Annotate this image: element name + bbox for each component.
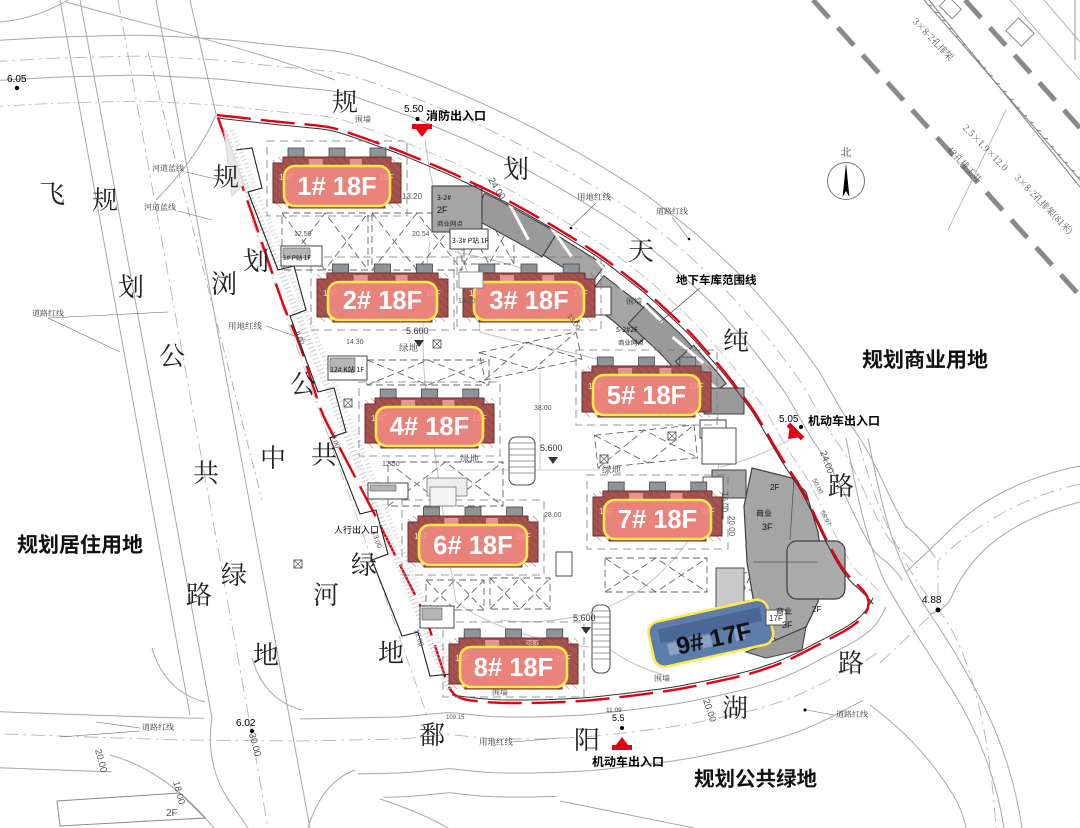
svg-text:17F: 17F (769, 614, 783, 623)
svg-text:5.600: 5.600 (540, 443, 563, 453)
svg-text:20.00: 20.00 (727, 516, 736, 537)
svg-text:5.05: 5.05 (779, 414, 799, 425)
svg-text:13.20: 13.20 (402, 192, 423, 201)
svg-text:4.88: 4.88 (922, 595, 942, 606)
svg-text:12.00: 12.00 (412, 628, 424, 647)
svg-text:30.00: 30.00 (246, 732, 263, 758)
svg-text:20.00: 20.00 (92, 748, 109, 774)
svg-text:3F: 3F (762, 522, 773, 532)
svg-text:2# 18F: 2# 18F (343, 287, 422, 315)
svg-text:5.600: 5.600 (573, 613, 596, 623)
svg-text:1# 18F: 1# 18F (297, 173, 376, 201)
svg-text:3# 18F: 3# 18F (489, 287, 568, 315)
svg-text:13.00: 13.00 (370, 530, 382, 549)
svg-text:14.00: 14.00 (458, 298, 476, 305)
svg-text:109.15: 109.15 (446, 715, 465, 721)
svg-text:6# 18F: 6# 18F (433, 532, 512, 560)
svg-text:11.09: 11.09 (606, 707, 622, 714)
svg-text:12.00: 12.00 (328, 430, 340, 449)
svg-text:28.00: 28.00 (526, 641, 544, 648)
svg-text:2F: 2F (166, 808, 178, 819)
svg-text:5# 18F: 5# 18F (607, 382, 686, 410)
svg-text:50.00: 50.00 (810, 478, 824, 496)
svg-text:14.30: 14.30 (346, 339, 364, 346)
svg-text:4# 18F: 4# 18F (390, 413, 469, 441)
svg-text:8# 18F: 8# 18F (474, 654, 553, 682)
svg-text:2F: 2F (437, 205, 448, 215)
svg-text:16.00: 16.00 (720, 492, 729, 513)
svg-text:28.00: 28.00 (544, 512, 562, 519)
svg-text:20.54: 20.54 (412, 231, 430, 238)
svg-text:5.5: 5.5 (612, 713, 625, 723)
svg-text:2F: 2F (812, 605, 821, 614)
svg-text:5.50: 5.50 (404, 104, 424, 115)
svg-text:3F: 3F (782, 620, 793, 630)
svg-text:12.50: 12.50 (382, 461, 400, 468)
svg-text:6.02: 6.02 (236, 718, 256, 729)
svg-text:5.600: 5.600 (406, 326, 429, 336)
svg-text:2F: 2F (770, 483, 779, 492)
svg-text:7# 18F: 7# 18F (618, 506, 697, 534)
svg-text:6.05: 6.05 (7, 74, 27, 85)
svg-text:12.50: 12.50 (294, 231, 312, 238)
svg-text:38.00: 38.00 (534, 405, 552, 412)
svg-text:24.00: 24.00 (817, 449, 835, 475)
svg-text:20.00: 20.00 (700, 698, 718, 724)
